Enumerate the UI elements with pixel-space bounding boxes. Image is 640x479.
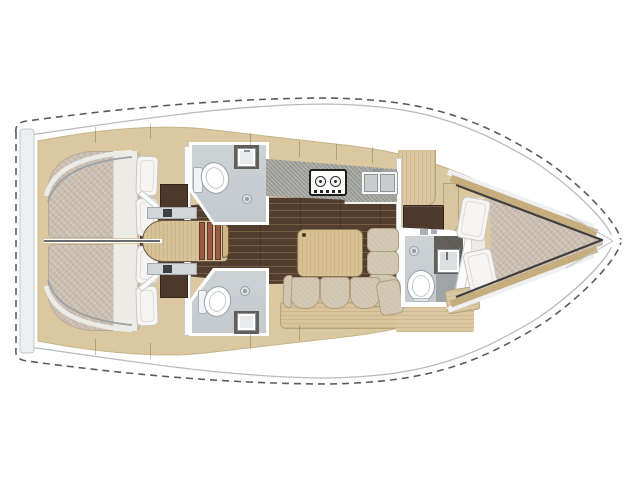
cabinet-seam (299, 141, 300, 157)
cabinet-seam (250, 133, 251, 149)
settee-seat-cushion (290, 277, 320, 309)
step-top (222, 224, 229, 258)
stove-knob (314, 190, 317, 193)
stove-knob (326, 190, 329, 193)
burner-center (334, 180, 337, 183)
washbasin (438, 250, 459, 272)
aft-starboard-pillow (135, 286, 158, 327)
floor-drain (240, 286, 250, 296)
salon-table (297, 229, 363, 277)
basin-faucet (446, 252, 448, 260)
floor-drain (242, 194, 252, 204)
cabinet-seam (299, 325, 300, 341)
step-tread (199, 222, 205, 260)
companionway-rail (147, 263, 197, 275)
sink-faucet (373, 169, 382, 172)
settee-back-cushion (367, 251, 399, 275)
companionway-rail (147, 207, 197, 219)
stove-knob (338, 190, 341, 193)
stove-knob (332, 190, 335, 193)
cabinet-seam (250, 333, 251, 349)
basin-faucet (244, 150, 250, 152)
sink-basin (380, 174, 395, 192)
rail-latch (163, 265, 172, 273)
washbasin (238, 314, 255, 330)
cabinet-seam (150, 343, 151, 359)
toilet-hinge (413, 298, 429, 302)
stove-knob (320, 190, 323, 193)
floor-drain (409, 246, 419, 256)
cabinet-seam (336, 144, 337, 160)
aft-port-berth-sheet (113, 151, 137, 238)
chart-desk (403, 205, 444, 232)
settee-seat-cushion (350, 277, 380, 309)
galley-outboard-cabinet (398, 150, 436, 206)
burner-center (319, 180, 322, 183)
step-tread (207, 222, 213, 260)
shower-mixer (420, 229, 428, 235)
cabinet-seam (372, 147, 373, 163)
settee-end-cushion (282, 275, 292, 308)
yacht-floor-plan (0, 0, 640, 479)
cabinet-seam (95, 339, 96, 355)
cabinet-seam (150, 123, 151, 139)
transom-platform (20, 129, 34, 353)
settee-seat-cushion (320, 277, 350, 309)
step-tread (215, 222, 221, 260)
shower-head (431, 229, 437, 234)
aft-port-pillow (135, 156, 158, 197)
aft-starboard-berth-sheet (113, 244, 137, 331)
table-fitting (302, 233, 306, 237)
cabinet-seam (95, 127, 96, 143)
settee-back-cushion (367, 228, 399, 252)
rail-latch (163, 209, 172, 217)
sink-basin (364, 174, 378, 192)
